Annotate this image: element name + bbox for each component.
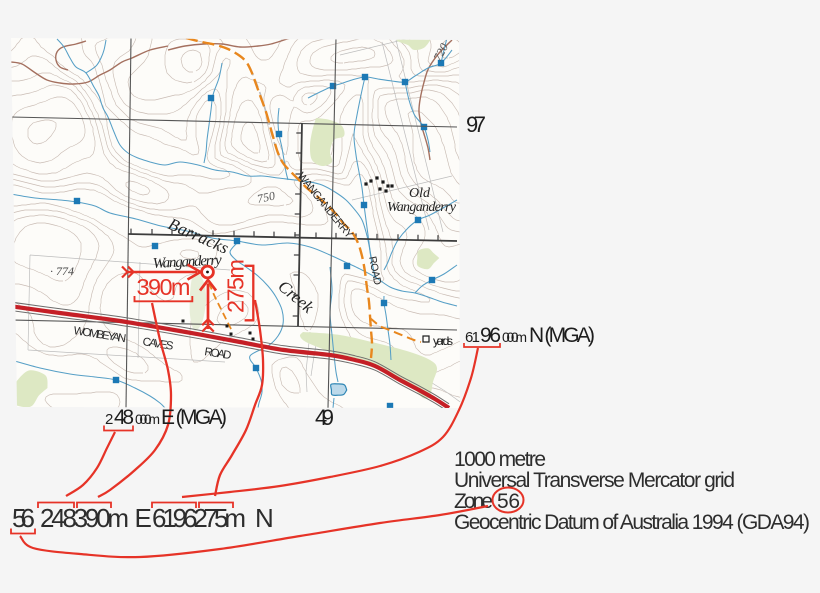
svg-text:000m: 000m: [135, 411, 160, 427]
svg-text:48: 48: [114, 406, 134, 429]
svg-text:1000 metre: 1000 metre: [454, 448, 546, 471]
svg-text:Wanganderry: Wanganderry: [387, 200, 457, 215]
svg-text:N (MGA): N (MGA): [529, 324, 595, 347]
svg-text:61: 61: [465, 329, 480, 346]
svg-text:275m: 275m: [223, 259, 249, 313]
svg-text:Old: Old: [409, 186, 431, 201]
svg-text:248390m: 248390m: [40, 503, 129, 533]
svg-text:96: 96: [480, 324, 501, 347]
svg-text:97: 97: [466, 112, 486, 137]
svg-text:yards: yards: [433, 334, 453, 348]
svg-text:390m: 390m: [137, 274, 191, 300]
svg-text:N: N: [255, 503, 274, 533]
svg-text:Universal Transverse Mercator: Universal Transverse Mercator grid: [454, 469, 735, 492]
svg-text:E: E: [135, 503, 152, 533]
svg-text:E (MGA): E (MGA): [161, 406, 227, 429]
svg-text:Geocentric Datum of Australia: Geocentric Datum of Australia 1994 (GDA9…: [454, 511, 810, 534]
svg-text:56: 56: [12, 503, 35, 533]
svg-text:· 774: · 774: [50, 264, 74, 278]
svg-text:2: 2: [105, 411, 113, 428]
svg-text:000m: 000m: [502, 329, 527, 345]
svg-text:49: 49: [315, 405, 334, 430]
